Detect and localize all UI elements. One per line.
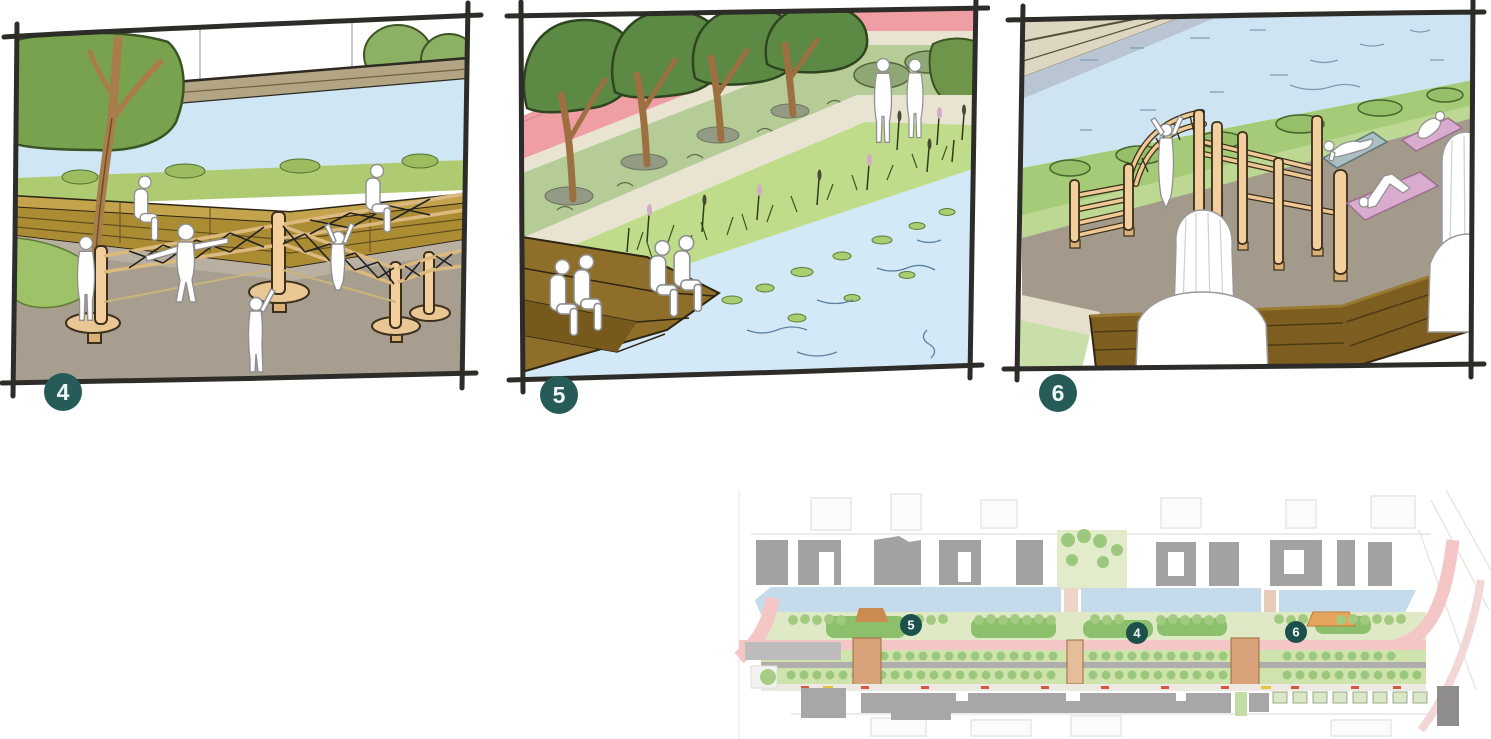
sketch-4-number-badge: 4 — [44, 373, 82, 411]
sketch-panel-4 — [0, 0, 497, 430]
masterplan-drawing: 5 4 6 — [731, 490, 1491, 739]
terrace-steps-plan — [1307, 612, 1355, 626]
sketch-5-illustration — [497, 0, 990, 430]
concept-sheet: 4 5 6 — [0, 0, 1491, 739]
sketch-4-illustration — [0, 0, 497, 430]
central-park — [1057, 529, 1127, 590]
sketch-panel-6 — [990, 0, 1491, 430]
sketch-6-number-badge: 6 — [1039, 374, 1077, 412]
median-trees-row2 — [787, 671, 1422, 680]
svg-text:5: 5 — [907, 618, 914, 633]
parking-strip — [761, 684, 1426, 691]
sketch-panel-5 — [497, 0, 990, 430]
south-bank — [761, 608, 1426, 642]
plan-marker-5: 5 — [900, 614, 922, 636]
svg-text:6: 6 — [1292, 625, 1299, 640]
masterplan-key-plan: 5 4 6 — [731, 490, 1491, 739]
sketch-6-illustration — [990, 0, 1491, 430]
plan-marker-6: 6 — [1285, 621, 1307, 643]
plan-marker-4: 4 — [1126, 622, 1148, 644]
median-trees-row1 — [867, 652, 1396, 661]
sketch-5-number-badge: 5 — [540, 376, 578, 414]
svg-text:4: 4 — [1133, 626, 1141, 641]
